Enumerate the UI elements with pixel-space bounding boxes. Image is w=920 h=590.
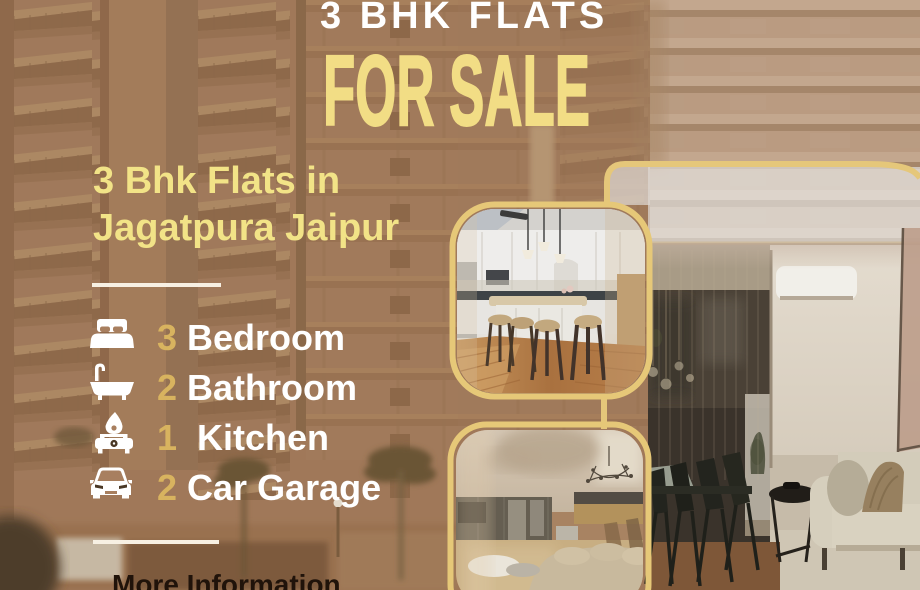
svg-text:FOR SALE: FOR SALE <box>323 36 590 136</box>
